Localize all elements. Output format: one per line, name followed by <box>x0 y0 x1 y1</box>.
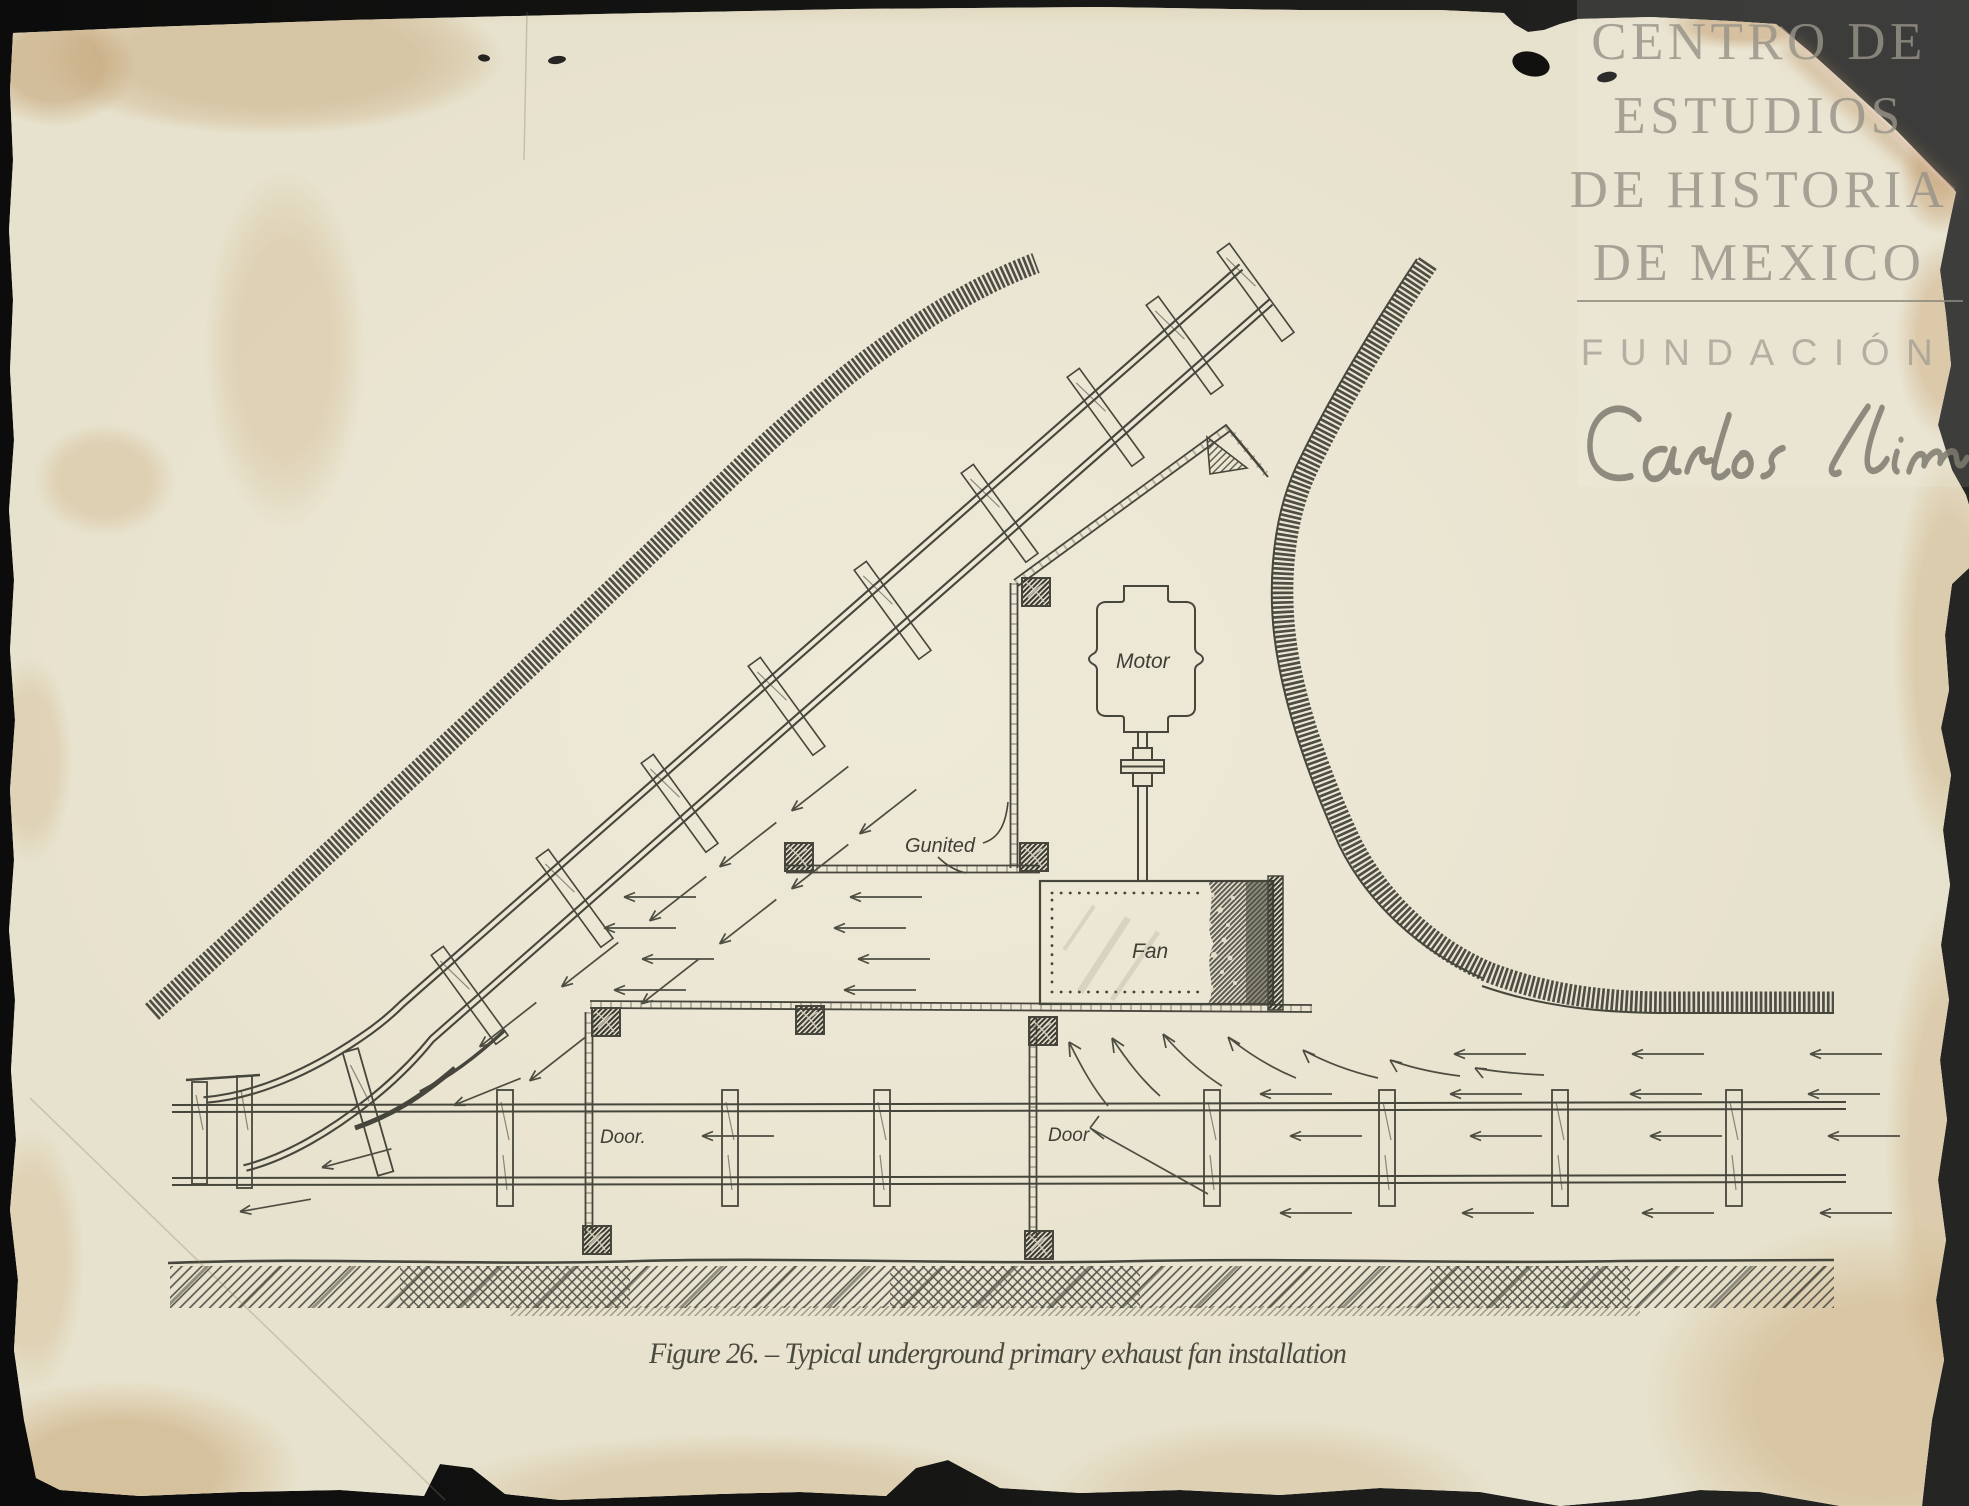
svg-text:Fan: Fan <box>1132 940 1168 963</box>
svg-text:Motor: Motor <box>1116 650 1171 673</box>
svg-text:Door: Door <box>1048 1125 1090 1146</box>
svg-text:Gunited: Gunited <box>905 835 976 857</box>
svg-text:Door.: Door. <box>600 1127 646 1148</box>
